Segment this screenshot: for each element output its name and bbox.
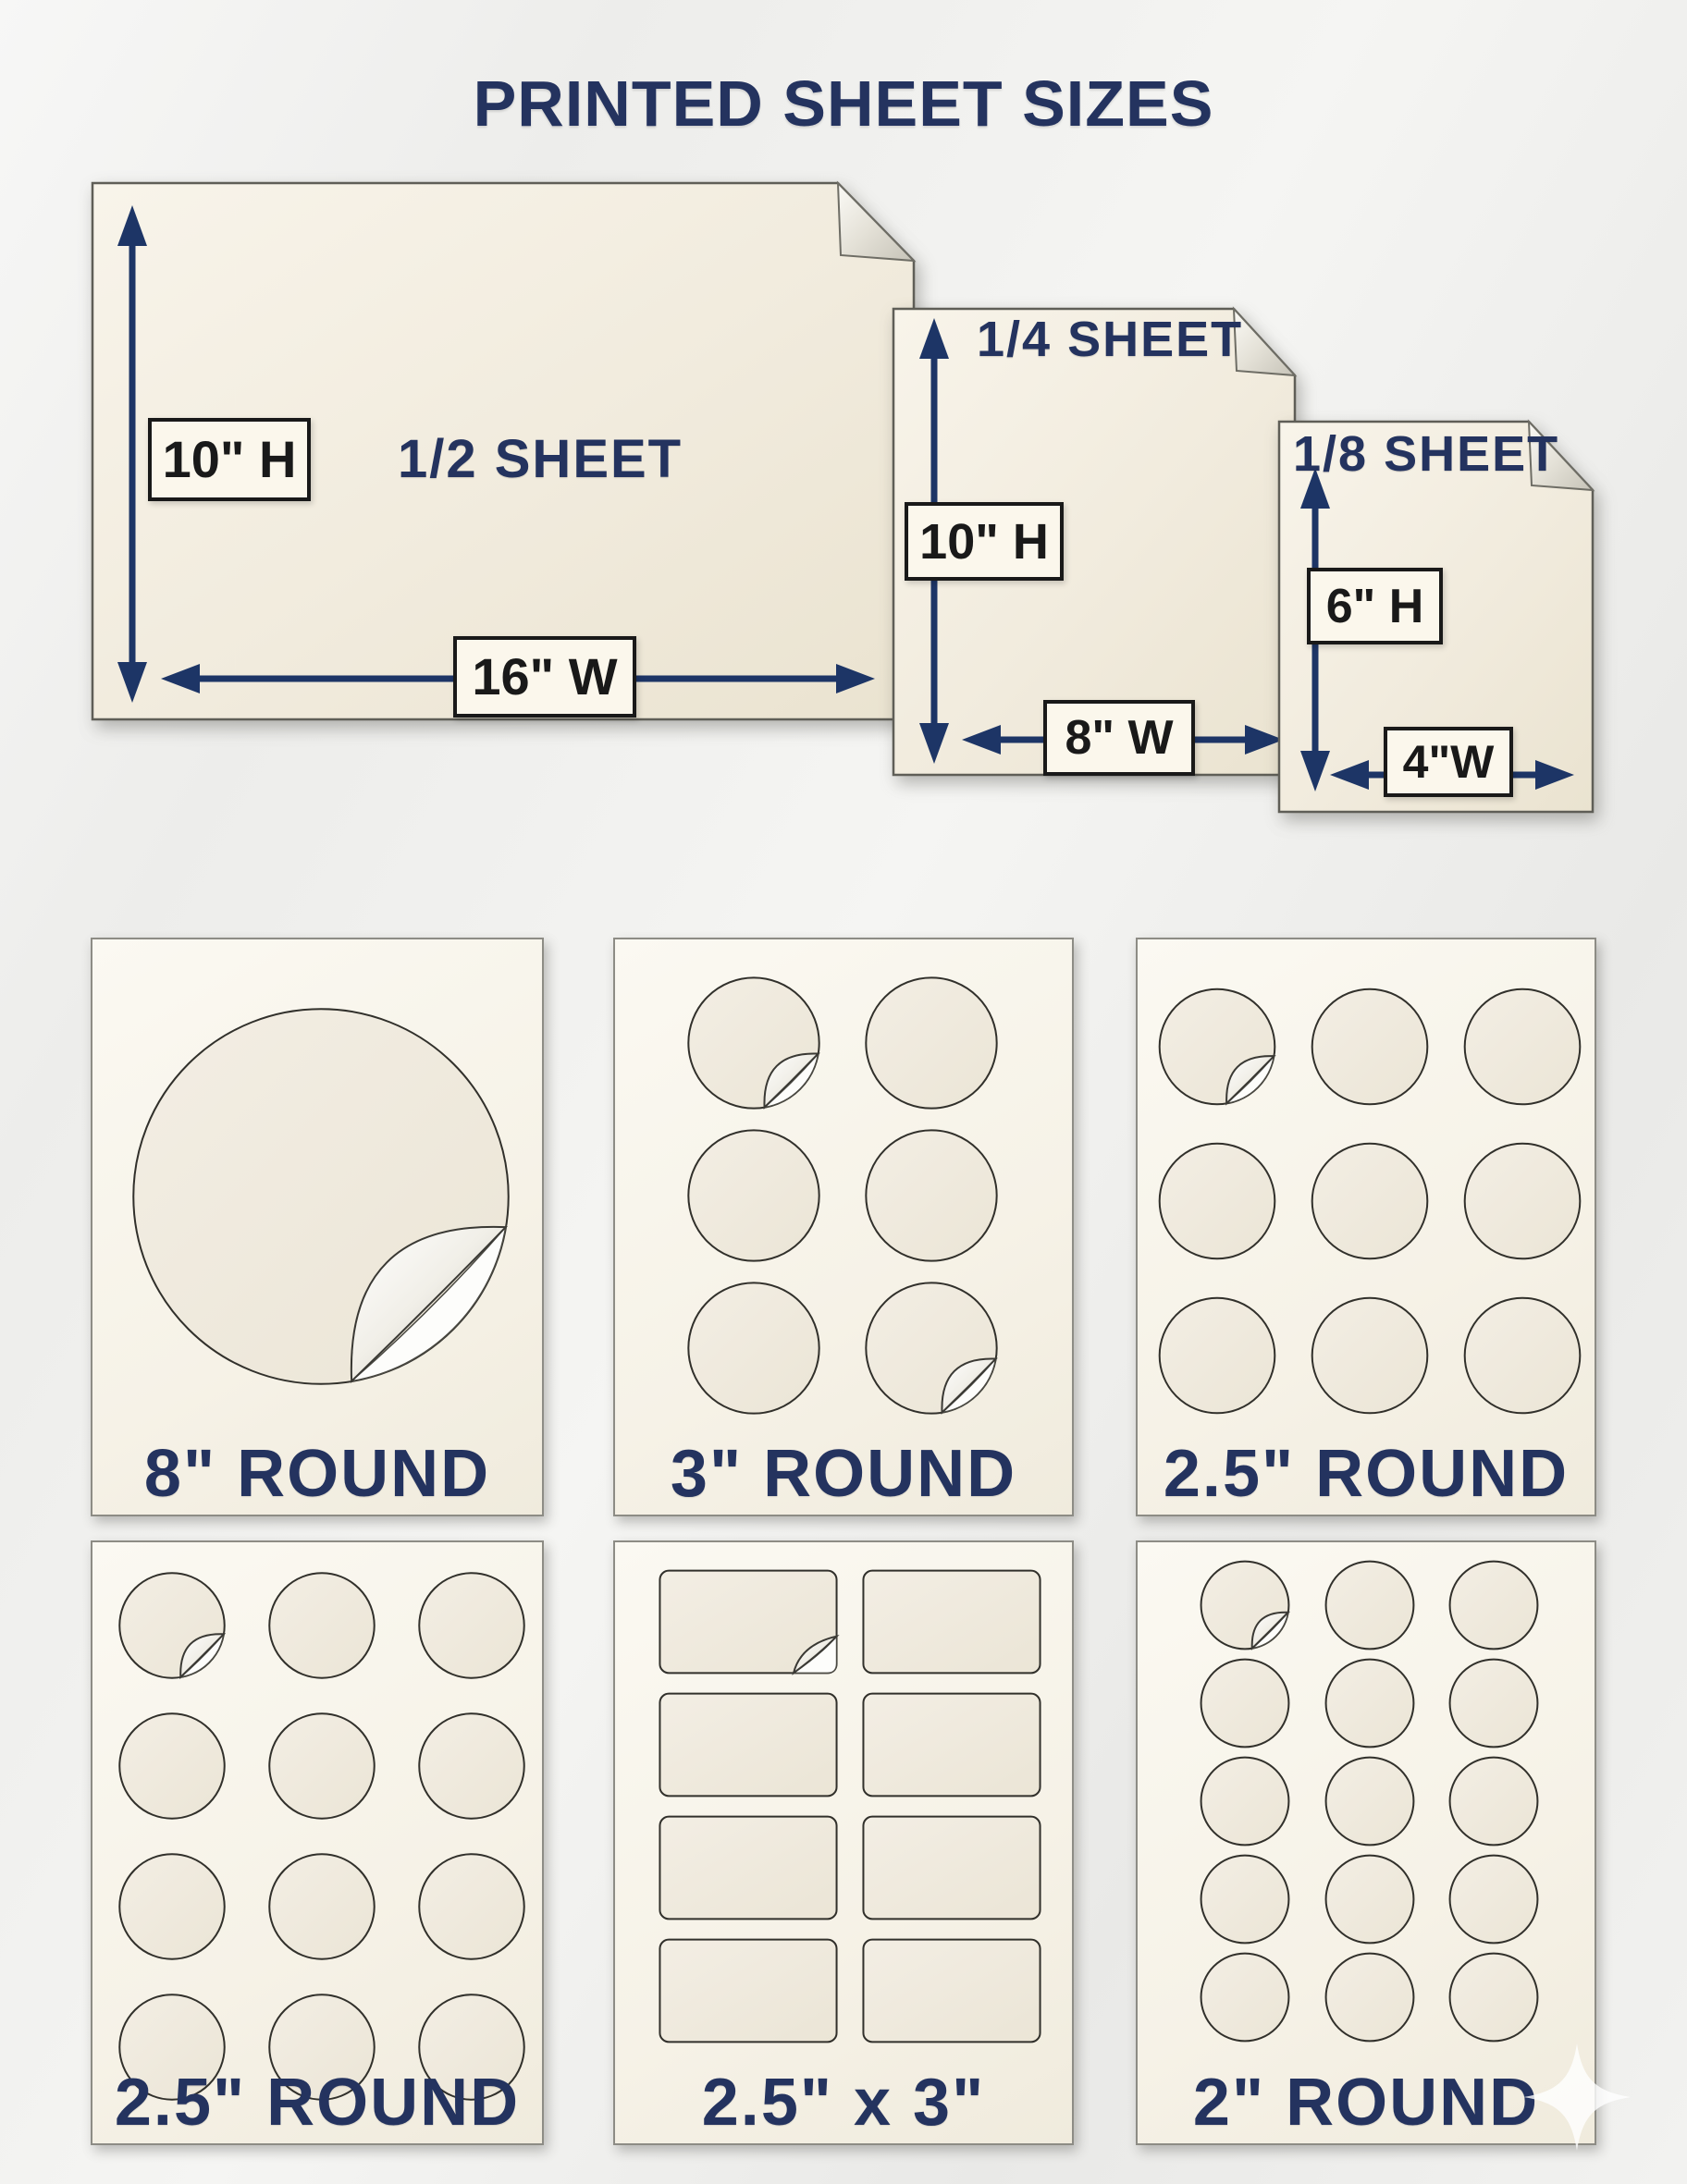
sticker-outline <box>1326 1562 1414 1650</box>
sticker-circle <box>1447 1754 1541 1848</box>
sticker-outline <box>1326 1856 1414 1944</box>
sticker-outline <box>659 1694 836 1797</box>
sticker-outline <box>419 1854 523 1958</box>
sticker-rect <box>861 1691 1042 1798</box>
half-sheet-width-label: 16" W <box>453 636 636 718</box>
sticker-circle <box>1323 1558 1417 1652</box>
sticker-grid <box>615 939 1072 1515</box>
sticker-circle <box>1198 1950 1292 2044</box>
sticker-sheet-card-2-5-round-9: 2.5" ROUND <box>1136 938 1596 1516</box>
sticker-circle <box>1447 1950 1541 2044</box>
sticker-circle <box>415 1569 528 1682</box>
sticker-outline <box>1450 1758 1538 1846</box>
sticker-circle <box>1447 1852 1541 1946</box>
sticker-grid <box>1138 939 1595 1515</box>
eighth-sheet-width-label: 4"W <box>1384 727 1513 797</box>
sticker-circle <box>116 1710 228 1822</box>
eighth-sheet-height-label: 6" H <box>1307 568 1443 644</box>
sticker-circle <box>861 973 1002 1113</box>
sticker-outline <box>1201 1856 1289 1944</box>
sticker-outline <box>1201 1954 1289 2042</box>
sticker-circle <box>116 1569 228 1682</box>
sparkle-watermark <box>1521 2042 1632 2153</box>
sticker-rect <box>861 1814 1042 1921</box>
sticker-rect <box>861 1937 1042 2044</box>
sticker-rect <box>658 1937 839 2044</box>
sticker-rect <box>861 1568 1042 1675</box>
sticker-rect <box>658 1691 839 1798</box>
sticker-outline <box>1326 1660 1414 1748</box>
sticker-outline <box>119 1713 224 1818</box>
sticker-outline <box>1450 1562 1538 1650</box>
sticker-outline <box>1465 1298 1581 1414</box>
sticker-circle <box>1323 1656 1417 1750</box>
sticker-outline <box>866 1130 996 1260</box>
sticker-circle <box>119 995 523 1398</box>
card-size-label: 2.5" ROUND <box>1138 1441 1595 1507</box>
sticker-outline <box>1312 989 1428 1105</box>
sticker-outline <box>863 1694 1040 1797</box>
sticker-circle <box>683 973 824 1113</box>
sticker-outline <box>1326 1954 1414 2042</box>
sticker-circle <box>1198 1558 1292 1652</box>
sticker-outline <box>688 1282 819 1413</box>
sticker-circle <box>265 1850 378 1963</box>
quarter-sheet-width-label: 8" W <box>1043 700 1195 776</box>
sticker-outline <box>1450 1954 1538 2042</box>
sticker-grid <box>92 939 542 1515</box>
sticker-outline <box>119 1854 224 1958</box>
sticker-circle <box>1460 985 1584 1109</box>
sticker-rect <box>658 1568 839 1675</box>
sticker-grid <box>615 1542 1072 2143</box>
sticker-outline <box>659 1940 836 2043</box>
sticker-outline <box>866 977 996 1108</box>
sticker-circle <box>1323 1950 1417 2044</box>
sticker-outline <box>419 1573 523 1677</box>
sticker-outline <box>1465 1144 1581 1259</box>
sticker-outline <box>863 1940 1040 2043</box>
sticker-outline <box>688 1130 819 1260</box>
sticker-sheet-card-3-round: 3" ROUND <box>613 938 1074 1516</box>
sticker-circle <box>1308 1294 1432 1417</box>
sticker-outline <box>1312 1144 1428 1259</box>
infographic-canvas: PRINTED SHEET SIZES <box>0 0 1687 2184</box>
sticker-circle <box>415 1850 528 1963</box>
sticker-circle <box>1155 985 1279 1109</box>
sticker-circle <box>1447 1656 1541 1750</box>
sticker-outline <box>419 1713 523 1818</box>
sticker-sheet-card-2-5-round-12: 2.5" ROUND <box>91 1540 544 2145</box>
quarter-sheet-height-label: 10" H <box>905 502 1064 581</box>
card-size-label: 3" ROUND <box>615 1441 1072 1507</box>
sticker-outline <box>659 1817 836 1920</box>
sticker-circle <box>116 1850 228 1963</box>
card-size-label: 2.5" ROUND <box>92 2069 542 2136</box>
sticker-outline <box>1160 1298 1275 1414</box>
sticker-outline <box>269 1573 374 1677</box>
half-sheet-title: 1/2 SHEET <box>398 433 683 486</box>
quarter-sheet-title: 1/4 SHEET <box>977 314 1243 364</box>
sticker-circle <box>683 1278 824 1418</box>
sticker-outline <box>1450 1856 1538 1944</box>
sticker-sheet-card-2-5x3-rect: 2.5" x 3" <box>613 1540 1074 2145</box>
sticker-circle <box>1447 1558 1541 1652</box>
sticker-sheet-card-8-round: 8" ROUND <box>91 938 544 1516</box>
sticker-outline <box>1312 1298 1428 1414</box>
sticker-rect <box>658 1814 839 1921</box>
sticker-circle <box>861 1278 1002 1418</box>
sticker-circle <box>1460 1294 1584 1417</box>
sticker-circle <box>1460 1139 1584 1263</box>
sticker-circle <box>1323 1754 1417 1848</box>
sticker-circle <box>1308 985 1432 1109</box>
sticker-outline <box>1326 1758 1414 1846</box>
sticker-outline <box>1450 1660 1538 1748</box>
sticker-circle <box>1155 1139 1279 1263</box>
sticker-circle <box>1198 1656 1292 1750</box>
sticker-circle <box>683 1125 824 1266</box>
sticker-circle <box>265 1569 378 1682</box>
sticker-outline <box>269 1854 374 1958</box>
sticker-outline <box>1465 989 1581 1105</box>
sticker-circle <box>265 1710 378 1822</box>
sticker-outline <box>1160 1144 1275 1259</box>
sticker-outline <box>1201 1758 1289 1846</box>
sticker-outline <box>863 1571 1040 1674</box>
sticker-circle <box>1155 1294 1279 1417</box>
eighth-sheet-title: 1/8 SHEET <box>1293 429 1559 479</box>
sticker-circle <box>1308 1139 1432 1263</box>
sticker-outline <box>269 1713 374 1818</box>
sticker-circle <box>415 1710 528 1822</box>
half-sheet-height-label: 10" H <box>148 418 311 501</box>
sticker-outline <box>1201 1660 1289 1748</box>
sticker-circle <box>1198 1754 1292 1848</box>
card-size-label: 8" ROUND <box>92 1441 542 1507</box>
sticker-circle <box>861 1125 1002 1266</box>
card-size-label: 2.5" x 3" <box>615 2069 1072 2136</box>
sticker-outline <box>863 1817 1040 1920</box>
sticker-grid <box>92 1542 542 2143</box>
sticker-circle <box>1198 1852 1292 1946</box>
sticker-circle <box>1323 1852 1417 1946</box>
folded-corner <box>838 183 914 261</box>
